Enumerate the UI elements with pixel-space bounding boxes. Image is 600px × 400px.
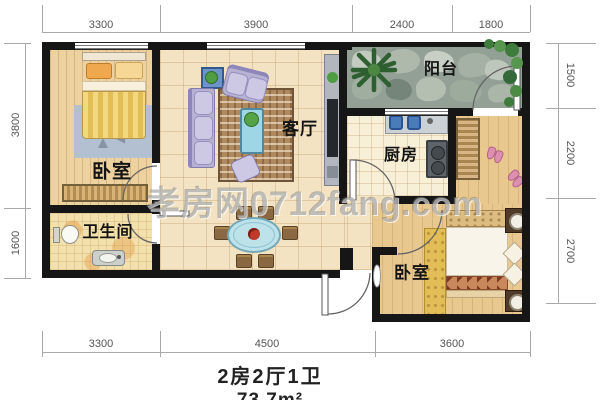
room-label-bedroom2: 卧室 xyxy=(394,265,430,282)
dim-line-top xyxy=(42,32,530,33)
door-leaf xyxy=(322,274,328,315)
dim-tick xyxy=(452,5,453,32)
door-arc xyxy=(328,273,370,314)
dim-tick xyxy=(375,331,376,357)
dim-tick xyxy=(4,278,31,279)
dim-label: 3300 xyxy=(89,338,113,350)
dim-tick xyxy=(352,5,353,32)
dim-tick xyxy=(42,5,43,32)
room-label-bathroom: 卫生间 xyxy=(82,225,133,241)
room-label-balcony: 阳台 xyxy=(424,62,458,78)
palm-plant-icon xyxy=(353,50,395,90)
dim-label: 1800 xyxy=(479,19,503,31)
room-label-living: 客厅 xyxy=(282,121,318,138)
floorplan-canvas: 卧室 卫生间 客厅 厨房 阳台 卧室 孝房网0712fang.com 3300 … xyxy=(0,0,600,400)
dim-tick xyxy=(42,331,43,357)
dim-line-right xyxy=(558,43,559,303)
dim-tick xyxy=(546,108,596,109)
dim-label: 1500 xyxy=(564,63,576,87)
dim-line-bottom xyxy=(42,352,530,353)
dim-label: 3800 xyxy=(10,113,22,137)
dim-label: 2200 xyxy=(564,141,576,165)
dim-label: 2700 xyxy=(564,239,576,263)
dim-tick xyxy=(530,5,531,32)
dim-tick xyxy=(530,331,531,357)
dim-tick xyxy=(546,43,596,44)
dim-label: 3300 xyxy=(89,19,113,31)
dim-label: 3600 xyxy=(440,338,464,350)
dim-tick xyxy=(546,303,596,304)
dim-tick xyxy=(160,5,161,32)
dim-line-left xyxy=(25,43,26,278)
watermark: 孝房网0712fang.com xyxy=(146,176,482,225)
caption-layout: 2房2厅1卫 xyxy=(170,360,370,389)
dim-label: 4500 xyxy=(255,338,279,350)
dim-tick xyxy=(546,198,596,199)
caption-block: 2房2厅1卫 73.7m² xyxy=(170,360,370,400)
door-threshold xyxy=(374,265,381,287)
dim-tick xyxy=(4,208,31,209)
room-label-bedroom1: 卧室 xyxy=(92,163,132,182)
dim-tick xyxy=(4,43,31,44)
dim-label: 3900 xyxy=(244,19,268,31)
caption-area: 73.7m² xyxy=(170,390,370,400)
room-label-kitchen: 厨房 xyxy=(384,148,418,164)
dim-label: 1600 xyxy=(10,231,22,255)
dim-label: 2400 xyxy=(390,19,414,31)
dim-tick xyxy=(160,331,161,357)
